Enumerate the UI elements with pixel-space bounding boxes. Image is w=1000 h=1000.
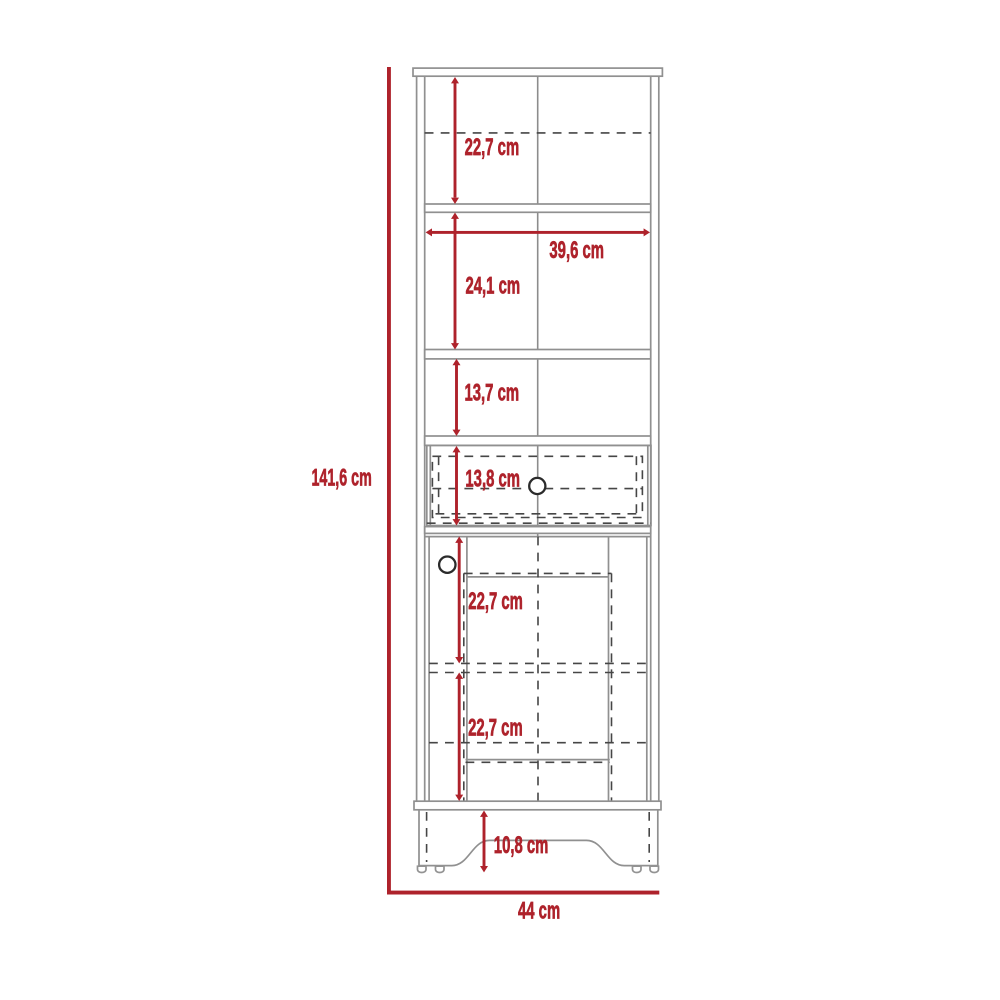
svg-text:13,8 cm: 13,8 cm bbox=[465, 466, 520, 492]
svg-text:22,7 cm: 22,7 cm bbox=[465, 134, 520, 160]
svg-text:24,1 cm: 24,1 cm bbox=[466, 273, 521, 299]
svg-text:22,7 cm: 22,7 cm bbox=[468, 715, 523, 741]
svg-text:39,6 cm: 39,6 cm bbox=[549, 237, 604, 263]
svg-text:10,8 cm: 10,8 cm bbox=[494, 833, 549, 859]
svg-text:22,7 cm: 22,7 cm bbox=[468, 589, 523, 615]
svg-text:141,6 cm: 141,6 cm bbox=[312, 465, 372, 492]
svg-text:44 cm: 44 cm bbox=[518, 898, 560, 924]
svg-text:13,7 cm: 13,7 cm bbox=[465, 380, 520, 406]
